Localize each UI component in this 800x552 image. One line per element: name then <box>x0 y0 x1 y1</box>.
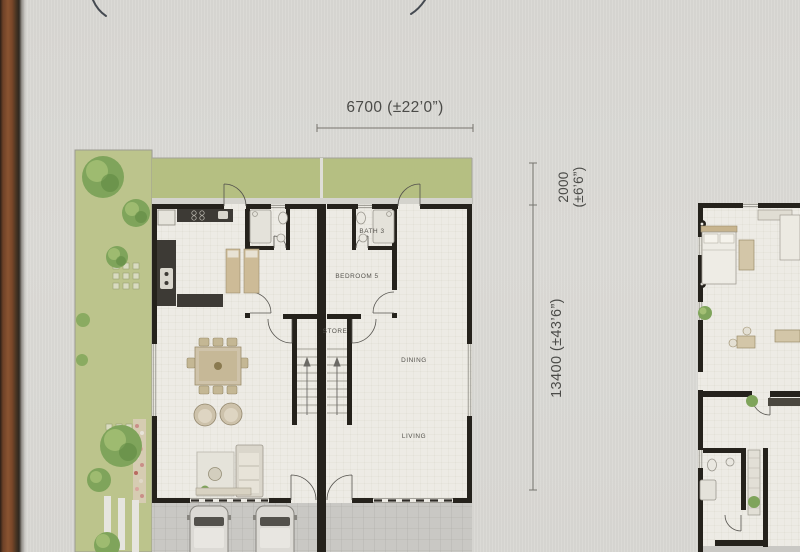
logo-curve-fragments <box>93 0 425 16</box>
dimension-width-label: 6700 (±22’0”) <box>317 99 473 117</box>
dimension-line-depth <box>529 163 537 490</box>
basin-right <box>359 234 367 242</box>
logo-curve-left <box>93 0 106 16</box>
basin-left <box>277 234 285 242</box>
rear-yard <box>152 158 472 206</box>
fridge <box>158 210 175 225</box>
lot-divider <box>320 158 323 198</box>
room-label-living: LIVING <box>384 433 444 440</box>
floor-plan-drawing <box>0 0 800 552</box>
room-label-dining: DINING <box>384 357 444 364</box>
party-wall <box>317 204 326 552</box>
room-label-store: STORE <box>305 328 365 335</box>
car <box>253 506 297 552</box>
tree <box>122 199 150 227</box>
shower-right <box>373 210 394 243</box>
armchair <box>194 404 216 426</box>
shower-left <box>250 210 271 243</box>
armchair <box>220 403 242 425</box>
upper-floor-partial-plan <box>698 203 800 552</box>
room-label-bedroom5: BEDROOM 5 <box>327 273 387 280</box>
photographed-floorplan-page: 6700 (±22’0”) 2000 (±6’6”) 13400 (±43’6”… <box>0 0 800 552</box>
cutoff-console <box>775 330 800 342</box>
coffee-table <box>209 468 222 481</box>
toilet-right <box>357 212 366 224</box>
logo-curve-right <box>411 0 425 14</box>
tree <box>100 425 142 467</box>
upper-bed <box>701 226 737 284</box>
sink <box>160 268 173 289</box>
tv-console <box>196 488 251 495</box>
toilet-left <box>279 212 288 224</box>
dimension-rear-line1: 2000 <box>556 159 571 215</box>
tree <box>82 156 124 198</box>
tree <box>106 246 128 268</box>
car <box>187 506 231 552</box>
room-label-bath3: BATH 3 <box>342 228 402 235</box>
tree <box>87 468 111 492</box>
dimension-total-depth-label: 13400 (±43’6”) <box>549 288 565 408</box>
cutoff-bed <box>780 215 800 260</box>
console-dark <box>768 398 800 406</box>
upper-desk <box>739 240 754 270</box>
dimension-rear-line2: (±6’6”) <box>571 159 586 215</box>
dimension-line-width <box>317 124 473 132</box>
dimension-rear-depth-label: 2000 (±6’6”) <box>556 159 592 215</box>
